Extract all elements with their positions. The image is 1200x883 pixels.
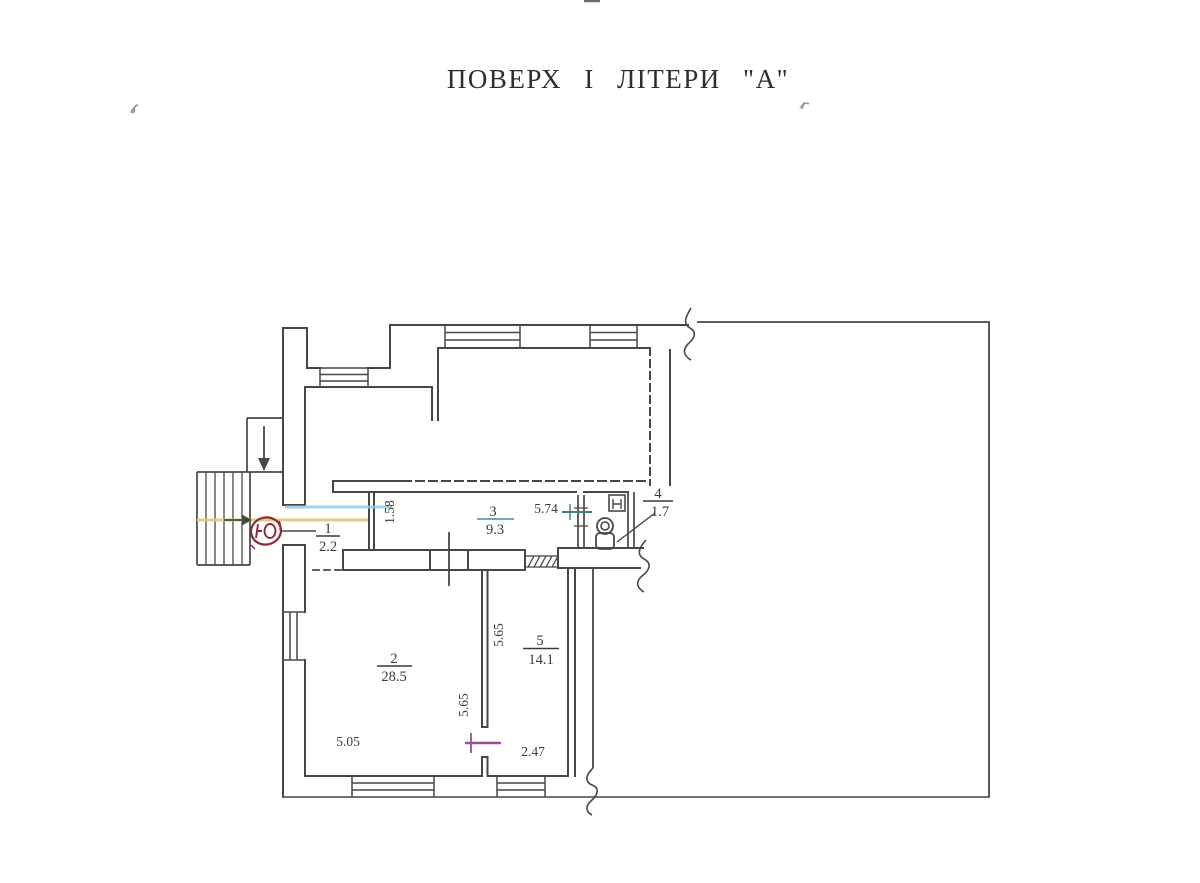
sink-glyph bbox=[613, 499, 621, 509]
corridor-bottom-wall bbox=[343, 550, 525, 570]
adjacent-outline bbox=[697, 322, 989, 797]
scanned-floor-plan-page: ПОВЕРХ І ЛІТЕРИ "А" bbox=[0, 0, 1200, 883]
window-top-1 bbox=[445, 325, 520, 348]
window-bottom-room2 bbox=[352, 776, 434, 797]
entrance-jambs bbox=[283, 505, 305, 545]
toilet-icon bbox=[597, 518, 613, 534]
interior-wall-spur bbox=[432, 348, 438, 420]
window-top-left bbox=[320, 368, 368, 387]
corridor-left-wall bbox=[369, 492, 374, 550]
room5-area: 14.1 bbox=[528, 652, 553, 668]
room-labels: 1 2.2 2 28.5 3 9.3 4 1.7 5 14.1 bbox=[319, 486, 669, 685]
room1-area: 2.2 bbox=[319, 539, 337, 555]
corridor-top-lower bbox=[333, 481, 628, 492]
stair-down-arrow-icon bbox=[258, 458, 270, 471]
room3-number: 3 bbox=[489, 504, 496, 520]
room2-room5-divider bbox=[482, 570, 488, 776]
break-line-top bbox=[684, 308, 694, 360]
hatched-door-sill bbox=[525, 556, 558, 567]
wc-room bbox=[574, 492, 655, 549]
room1-number: 1 bbox=[324, 521, 331, 537]
room4-area: 1.7 bbox=[651, 504, 669, 520]
window-left-wall bbox=[283, 612, 305, 660]
window-bottom-room5 bbox=[497, 776, 545, 797]
dim-entry-width: 1.58 bbox=[382, 500, 397, 524]
room2-area: 28.5 bbox=[381, 669, 406, 685]
toilet-bowl bbox=[596, 533, 614, 549]
toilet-inner-circle bbox=[601, 522, 609, 530]
scan-artifacts bbox=[131, 1, 809, 113]
sink-icon bbox=[609, 495, 625, 511]
plan-title: ПОВЕРХ І ЛІТЕРИ "А" bbox=[447, 64, 789, 94]
adjacent-structure bbox=[587, 308, 989, 815]
window-symbols bbox=[283, 325, 637, 797]
top-left-step bbox=[283, 325, 390, 368]
room5-right-wall bbox=[568, 568, 575, 776]
room5-number: 5 bbox=[536, 633, 543, 649]
building-outline bbox=[283, 325, 989, 797]
wc-partition-ticks bbox=[574, 508, 588, 526]
dim-corridor-length: 5.74 bbox=[534, 501, 558, 516]
room3-area: 9.3 bbox=[486, 522, 504, 538]
wc-partition bbox=[578, 495, 584, 548]
corridor-bottom-wall-right bbox=[558, 548, 643, 568]
hand-annotations bbox=[197, 504, 592, 753]
room4-number: 4 bbox=[654, 486, 662, 502]
window-top-2 bbox=[590, 325, 637, 348]
dim-room5-depth: 5.65 bbox=[491, 623, 506, 647]
floor-plan-drawing: ПОВЕРХ І ЛІТЕРИ "А" bbox=[0, 0, 1200, 883]
room4-leader-line bbox=[617, 513, 655, 542]
room2-number: 2 bbox=[390, 651, 397, 667]
break-line-bottom bbox=[587, 768, 597, 815]
dim-room2-width: 5.05 bbox=[336, 734, 360, 749]
wc-right-wall bbox=[628, 492, 634, 548]
dim-room5-width: 2.47 bbox=[521, 744, 545, 759]
dim-room2-depth: 5.65 bbox=[456, 693, 471, 717]
